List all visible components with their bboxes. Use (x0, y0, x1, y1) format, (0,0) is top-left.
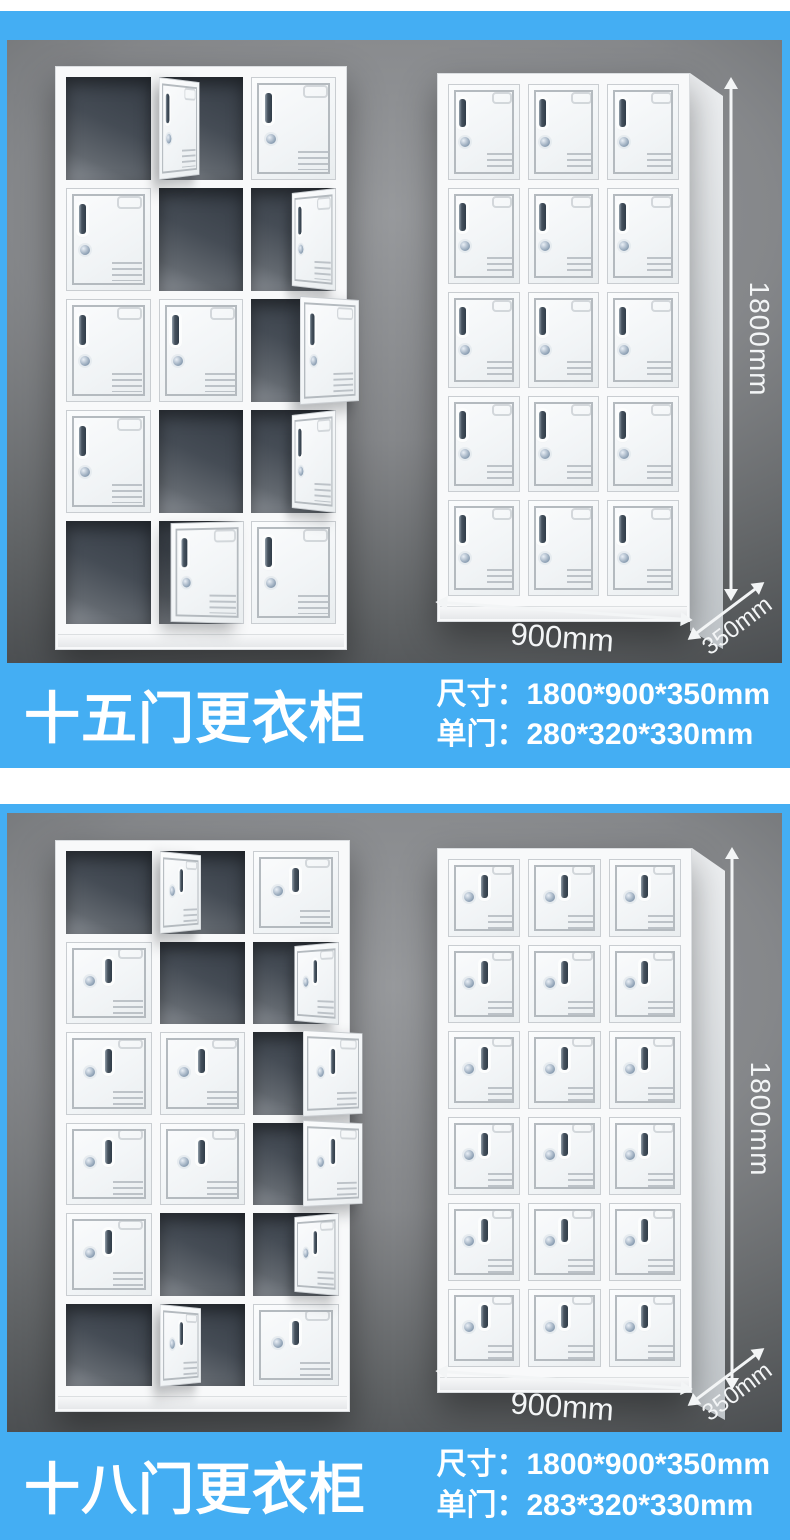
arrowhead-up-icon (725, 847, 739, 859)
card-holder-icon (117, 307, 142, 320)
door-handle-icon (619, 515, 626, 543)
card-holder-icon (653, 865, 674, 875)
locker-cell-open (66, 1304, 152, 1387)
locker-cell-closed (607, 84, 679, 180)
spec-door-line: 单门：283*320*330mm (436, 1488, 770, 1523)
door-lock-icon (545, 1150, 555, 1160)
locker-door (303, 1120, 362, 1207)
locker-cell-closed (448, 1289, 520, 1367)
photo-panel-fifteen: 1800mm 900mm 350mm (7, 40, 782, 663)
door-lock-icon (545, 892, 555, 902)
locker-door (66, 942, 152, 1025)
vent-grille-icon (648, 1173, 673, 1187)
card-holder-icon (492, 865, 513, 875)
door-handle-icon (561, 1047, 568, 1070)
vent-grille-icon (488, 1173, 513, 1187)
locker-door (607, 188, 679, 284)
vent-grille-icon (647, 465, 672, 483)
card-holder-icon (572, 1209, 593, 1219)
vent-grille-icon (300, 910, 330, 925)
locker-open-15-door (55, 66, 347, 650)
door-lock-icon (182, 577, 190, 587)
cabinet-side-panel (690, 73, 723, 649)
door-lock-icon (80, 467, 90, 477)
door-lock-icon (625, 1236, 635, 1246)
locker-cell-closed (160, 1123, 246, 1206)
door-handle-icon (265, 93, 272, 123)
locker-cell-open (253, 1213, 339, 1296)
locker-cell-closed (448, 859, 520, 937)
door-lock-icon (304, 977, 309, 986)
door-lock-icon (179, 1157, 189, 1167)
vent-grille-icon (337, 1091, 357, 1107)
locker-door (170, 521, 243, 624)
locker-door (251, 521, 336, 624)
locker-cell-open (160, 1213, 246, 1296)
door-lock-icon (625, 1064, 635, 1074)
door-handle-icon (459, 203, 466, 231)
door-handle-icon (619, 99, 626, 127)
locker-cell-closed (528, 396, 600, 492)
vent-grille-icon (298, 595, 328, 614)
locker-grid (56, 841, 349, 1396)
section-eighteen-door: 1800mm 900mm 350mm 十八门更衣柜 尺寸：1800*900*35… (0, 804, 790, 1540)
locker-door (528, 396, 600, 492)
vent-grille-icon (298, 151, 328, 170)
door-lock-icon (545, 978, 555, 988)
locker-cell-open (251, 188, 336, 291)
vent-grille-icon (205, 373, 235, 392)
door-handle-icon (298, 207, 301, 235)
door-lock-icon (299, 244, 304, 253)
vent-grille-icon (568, 1173, 593, 1187)
vent-grille-icon (568, 1001, 593, 1015)
door-handle-icon (105, 959, 112, 983)
card-holder-icon (651, 300, 672, 312)
height-label: 1800mm (743, 282, 775, 397)
locker-cell-closed (253, 1304, 339, 1387)
vent-grille-icon (207, 1091, 237, 1106)
door-handle-icon (539, 411, 546, 439)
product-title: 十五门更衣柜 (24, 674, 366, 755)
door-lock-icon (266, 134, 276, 144)
height-dimension-arrow: 1800mm (723, 77, 739, 601)
door-lock-icon (85, 976, 95, 986)
vent-grille-icon (647, 257, 672, 275)
locker-cell-closed (66, 1123, 152, 1206)
door-handle-icon (539, 99, 546, 127)
vent-grille-icon (568, 1087, 593, 1101)
card-holder-icon (318, 197, 332, 211)
locker-door (607, 84, 679, 180)
locker-cell-closed (66, 410, 151, 513)
locker-door (448, 1289, 520, 1367)
vent-grille-icon (648, 1345, 673, 1359)
locker-door (448, 500, 520, 596)
locker-cell-closed (528, 945, 600, 1023)
door-lock-icon (460, 553, 470, 563)
dimension-line (731, 850, 734, 1387)
door-lock-icon (625, 1322, 635, 1332)
dimension-line (730, 80, 733, 598)
locker-door (295, 942, 339, 1025)
locker-interior (160, 942, 246, 1025)
card-holder-icon (653, 1295, 674, 1305)
locker-interior (159, 188, 244, 291)
door-handle-icon (459, 411, 466, 439)
vent-grille-icon (567, 153, 592, 171)
locker-cell-closed (253, 851, 339, 934)
locker-door (66, 1213, 152, 1296)
locker-cell-closed (528, 188, 600, 284)
vent-grille-icon (300, 1362, 330, 1377)
door-lock-icon (464, 892, 474, 902)
card-holder-icon (492, 300, 513, 312)
card-holder-icon (572, 865, 593, 875)
locker-cell-closed (609, 859, 681, 937)
vent-grille-icon (112, 484, 142, 503)
door-handle-icon (198, 1140, 205, 1164)
locker-door (528, 188, 600, 284)
locker-door (609, 1289, 681, 1367)
locker-door (607, 396, 679, 492)
door-lock-icon (464, 1150, 474, 1160)
vent-grille-icon (648, 1001, 673, 1015)
locker-closed-18-door-wrap (437, 848, 692, 1393)
door-lock-icon (619, 449, 629, 459)
card-holder-icon (653, 1037, 674, 1047)
door-handle-icon (310, 313, 315, 345)
door-handle-icon (79, 204, 86, 234)
door-lock-icon (166, 133, 171, 143)
card-holder-icon (492, 92, 513, 104)
locker-cell-open (66, 521, 151, 624)
vent-grille-icon (334, 373, 354, 393)
door-handle-icon (298, 429, 301, 457)
door-lock-icon (273, 1338, 283, 1348)
vent-grille-icon (568, 1345, 593, 1359)
door-lock-icon (619, 241, 629, 251)
vent-grille-icon (182, 149, 196, 168)
locker-cell-open (253, 1123, 339, 1206)
locker-cell-open (159, 188, 244, 291)
card-holder-icon (492, 196, 513, 208)
locker-door (292, 188, 336, 291)
spec-door-line: 单门：280*320*330mm (436, 717, 770, 752)
door-handle-icon (619, 307, 626, 335)
card-holder-icon (214, 529, 236, 542)
card-holder-icon (340, 1038, 357, 1049)
vent-grille-icon (487, 569, 512, 587)
door-handle-icon (561, 1219, 568, 1242)
door-lock-icon (304, 1248, 309, 1257)
spec-banner-eighteen: 十八门更衣柜 尺寸：1800*900*350mm 单门：283*320*330m… (0, 1432, 790, 1540)
door-handle-icon (561, 1133, 568, 1156)
locker-cell-closed (448, 396, 520, 492)
locker-door (448, 292, 520, 388)
vent-grille-icon (113, 1181, 143, 1196)
door-handle-icon (641, 1305, 648, 1328)
door-handle-icon (481, 961, 488, 984)
locker-door (607, 500, 679, 596)
card-holder-icon (118, 1220, 143, 1230)
locker-closed-18-door (437, 848, 692, 1393)
locker-cell-closed (609, 1117, 681, 1195)
card-holder-icon (117, 418, 142, 431)
door-lock-icon (545, 1236, 555, 1246)
door-lock-icon (460, 137, 470, 147)
vent-grille-icon (648, 1087, 673, 1101)
door-lock-icon (540, 241, 550, 251)
door-handle-icon (481, 1047, 488, 1070)
door-lock-icon (619, 345, 629, 355)
door-handle-icon (641, 1133, 648, 1156)
door-handle-icon (181, 538, 187, 567)
vent-grille-icon (488, 915, 513, 929)
locker-cell-closed (607, 500, 679, 596)
locker-door (303, 1030, 362, 1117)
card-holder-icon (572, 1123, 593, 1133)
vent-grille-icon (487, 465, 512, 483)
locker-cell-closed (448, 292, 520, 388)
locker-cell-closed (66, 188, 151, 291)
door-handle-icon (166, 94, 170, 124)
arrowhead-left-icon (435, 595, 448, 610)
door-lock-icon (85, 1067, 95, 1077)
card-holder-icon (571, 92, 592, 104)
locker-interior (66, 77, 151, 180)
locker-door (448, 396, 520, 492)
locker-cell-open (251, 410, 336, 513)
spec-size-line: 尺寸：1800*900*350mm (436, 677, 770, 712)
door-handle-icon (561, 875, 568, 898)
locker-door (253, 851, 339, 934)
locker-door (448, 859, 520, 937)
height-dimension-arrow: 1800mm (724, 847, 740, 1390)
locker-cell-closed (607, 292, 679, 388)
locker-cell-closed (609, 945, 681, 1023)
vent-grille-icon (567, 257, 592, 275)
vent-grille-icon (183, 908, 197, 923)
door-lock-icon (85, 1157, 95, 1167)
locker-cell-closed (66, 942, 152, 1025)
vent-grille-icon (318, 1000, 334, 1016)
vent-grille-icon (113, 1000, 143, 1015)
locker-cell-closed (609, 1289, 681, 1367)
vent-grille-icon (210, 594, 236, 613)
door-lock-icon (317, 1157, 323, 1167)
locker-door (160, 1032, 246, 1115)
product-title: 十八门更衣柜 (24, 1445, 366, 1526)
locker-door (253, 1304, 339, 1387)
vent-grille-icon (567, 361, 592, 379)
door-handle-icon (105, 1230, 112, 1254)
card-holder-icon (340, 1129, 357, 1140)
locker-closed-15-door-wrap (437, 73, 690, 622)
locker-cell-closed (251, 521, 336, 624)
card-holder-icon (492, 1209, 513, 1219)
door-handle-icon (481, 1305, 488, 1328)
locker-door (448, 1203, 520, 1281)
locker-door (609, 1203, 681, 1281)
arrowhead-left-icon (435, 1364, 448, 1379)
card-holder-icon (492, 508, 513, 520)
door-lock-icon (460, 241, 470, 251)
door-handle-icon (539, 515, 546, 543)
locker-door (448, 945, 520, 1023)
card-holder-icon (572, 951, 593, 961)
card-holder-icon (572, 1295, 593, 1305)
locker-door (66, 299, 151, 402)
locker-interior (159, 410, 244, 513)
vent-grille-icon (112, 262, 142, 281)
locker-interior (66, 851, 152, 934)
card-holder-icon (653, 951, 674, 961)
locker-door (609, 1117, 681, 1195)
door-handle-icon (561, 1305, 568, 1328)
locker-base (58, 1396, 347, 1409)
vent-grille-icon (315, 483, 331, 503)
locker-cell-closed (448, 945, 520, 1023)
product-detail-image: 1800mm 900mm 350mm 十五门更衣柜 尺寸：1800*900*35… (0, 0, 790, 1540)
locker-interior (66, 1304, 152, 1387)
vent-grille-icon (567, 569, 592, 587)
door-lock-icon (540, 449, 550, 459)
locker-door (66, 1032, 152, 1115)
card-holder-icon (572, 1037, 593, 1047)
door-handle-icon (481, 1133, 488, 1156)
door-handle-icon (105, 1049, 112, 1073)
card-holder-icon (318, 419, 332, 433)
locker-door (448, 188, 520, 284)
door-handle-icon (481, 1219, 488, 1242)
locker-cell-closed (528, 84, 600, 180)
door-handle-icon (292, 868, 299, 892)
locker-interior (160, 1213, 246, 1296)
card-holder-icon (210, 307, 235, 320)
door-handle-icon (641, 1047, 648, 1070)
card-holder-icon (212, 1129, 237, 1139)
door-lock-icon (170, 1338, 175, 1348)
card-holder-icon (651, 92, 672, 104)
locker-cell-closed (528, 500, 600, 596)
locker-door (528, 859, 600, 937)
card-holder-icon (185, 860, 196, 870)
door-lock-icon (460, 449, 470, 459)
locker-cell-closed (160, 1032, 246, 1115)
card-holder-icon (653, 1209, 674, 1219)
locker-door (66, 410, 151, 513)
locker-door (292, 410, 336, 513)
locker-cell-open (253, 1032, 339, 1115)
door-lock-icon (170, 886, 175, 896)
locker-cell-open (159, 521, 244, 624)
locker-cell-open (66, 77, 151, 180)
door-lock-icon (625, 978, 635, 988)
door-lock-icon (266, 578, 276, 588)
card-holder-icon (492, 1295, 513, 1305)
card-holder-icon (118, 1039, 143, 1049)
door-lock-icon (179, 1067, 189, 1077)
door-handle-icon (561, 961, 568, 984)
spec-size-line: 尺寸：1800*900*350mm (436, 1447, 770, 1482)
card-holder-icon (651, 508, 672, 520)
locker-door (609, 859, 681, 937)
door-lock-icon (173, 356, 183, 366)
door-handle-icon (459, 99, 466, 127)
locker-cell-closed (448, 1031, 520, 1109)
locker-cell-closed (607, 396, 679, 492)
locker-door (528, 1031, 600, 1109)
door-handle-icon (459, 307, 466, 335)
vent-grille-icon (648, 915, 673, 929)
door-handle-icon (539, 307, 546, 335)
locker-cell-closed (66, 1032, 152, 1115)
width-label: 900mm (509, 1385, 615, 1428)
vent-grille-icon (488, 1087, 513, 1101)
locker-door (607, 292, 679, 388)
locker-base (58, 634, 344, 647)
vent-grille-icon (112, 373, 142, 392)
vent-grille-icon (647, 153, 672, 171)
locker-door (251, 77, 336, 180)
locker-cell-closed (528, 1117, 600, 1195)
product-specs: 尺寸：1800*900*350mm 单门：280*320*330mm (436, 677, 770, 753)
locker-cell-closed (528, 1031, 600, 1109)
locker-cell-closed (159, 299, 244, 402)
door-lock-icon (540, 345, 550, 355)
card-holder-icon (185, 1312, 196, 1322)
door-lock-icon (540, 137, 550, 147)
locker-door (528, 1289, 600, 1367)
door-handle-icon (179, 869, 182, 892)
locker-door (528, 292, 600, 388)
vent-grille-icon (315, 261, 331, 281)
door-handle-icon (314, 960, 318, 983)
locker-cell-open (66, 851, 152, 934)
door-handle-icon (641, 875, 648, 898)
locker-cell-open (159, 410, 244, 513)
locker-cell-open (160, 1304, 246, 1387)
cabinet-side-panel (692, 848, 725, 1420)
locker-door (300, 296, 359, 405)
locker-cell-closed (448, 188, 520, 284)
door-handle-icon (314, 1231, 318, 1254)
locker-cell-closed (448, 1117, 520, 1195)
card-holder-icon (337, 307, 354, 321)
locker-cell-closed (609, 1031, 681, 1109)
locker-cell-open (160, 942, 246, 1025)
door-lock-icon (545, 1322, 555, 1332)
door-lock-icon (625, 892, 635, 902)
door-lock-icon (619, 137, 629, 147)
card-holder-icon (117, 196, 142, 209)
locker-closed-15-door (437, 73, 690, 622)
vent-grille-icon (648, 1259, 673, 1273)
card-holder-icon (651, 196, 672, 208)
card-holder-icon (492, 404, 513, 416)
door-handle-icon (459, 515, 466, 543)
height-label: 1800mm (744, 1061, 776, 1176)
vent-grille-icon (113, 1272, 143, 1287)
locker-cell-closed (448, 1203, 520, 1281)
door-handle-icon (292, 1321, 299, 1345)
card-holder-icon (303, 85, 328, 98)
card-holder-icon (651, 404, 672, 416)
door-lock-icon (273, 886, 283, 896)
card-holder-icon (320, 1220, 334, 1231)
door-lock-icon (540, 553, 550, 563)
